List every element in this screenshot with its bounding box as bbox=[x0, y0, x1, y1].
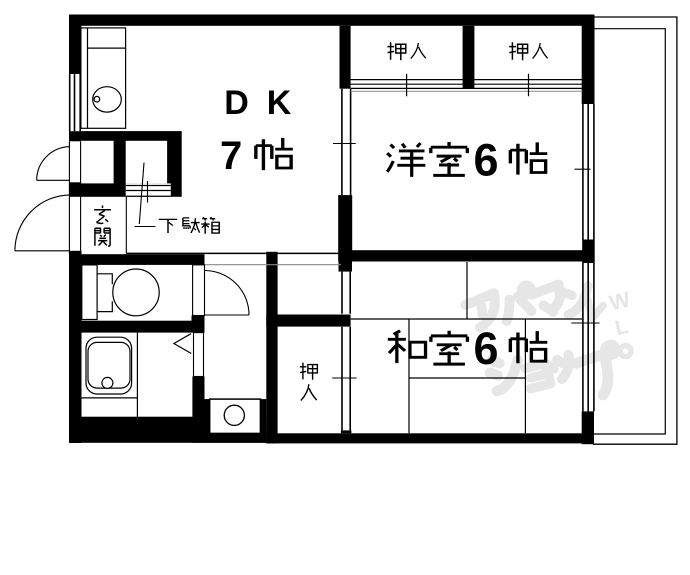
svg-text:D: D bbox=[224, 84, 249, 122]
svg-text:K: K bbox=[267, 84, 292, 122]
svg-text:7: 7 bbox=[220, 134, 242, 178]
svg-text:6: 6 bbox=[474, 134, 499, 185]
svg-text:6: 6 bbox=[474, 323, 499, 374]
